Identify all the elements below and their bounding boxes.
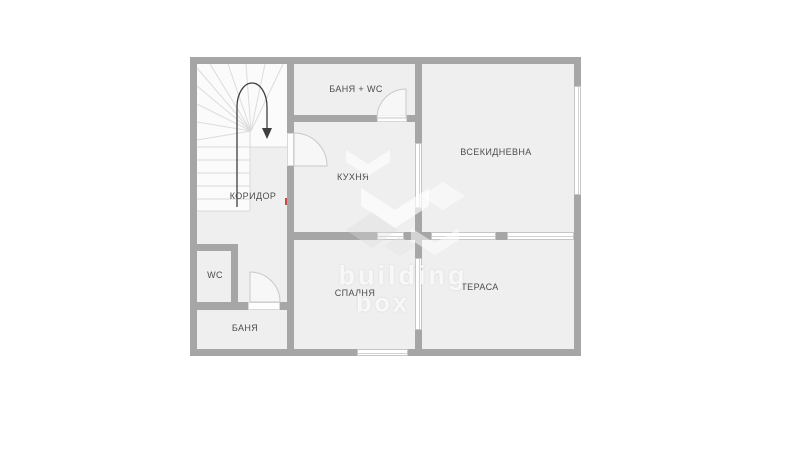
door-arc-bath — [250, 272, 280, 302]
room-label-living: ВСЕКИДНЕВНА — [460, 147, 531, 157]
stair-direction-arrow — [237, 83, 272, 207]
floor-plan: БАНЯ + WC ВСЕКИДНЕВНА КУХНЯ КОРИДОР WC Б… — [0, 0, 800, 457]
red-mark — [285, 198, 287, 205]
room-label-bath: БАНЯ — [232, 323, 258, 333]
room-label-corridor: КОРИДОР — [230, 191, 277, 201]
room-label-bath-wc: БАНЯ + WC — [329, 84, 383, 94]
room-label-wc: WC — [207, 270, 223, 280]
plan-symbols — [0, 0, 800, 457]
room-label-terrace: ТЕРАСА — [461, 282, 498, 292]
door-arc-kitchen — [294, 133, 327, 166]
room-label-bedroom: СПАЛНЯ — [335, 288, 375, 298]
room-label-kitchen: КУХНЯ — [337, 172, 369, 182]
